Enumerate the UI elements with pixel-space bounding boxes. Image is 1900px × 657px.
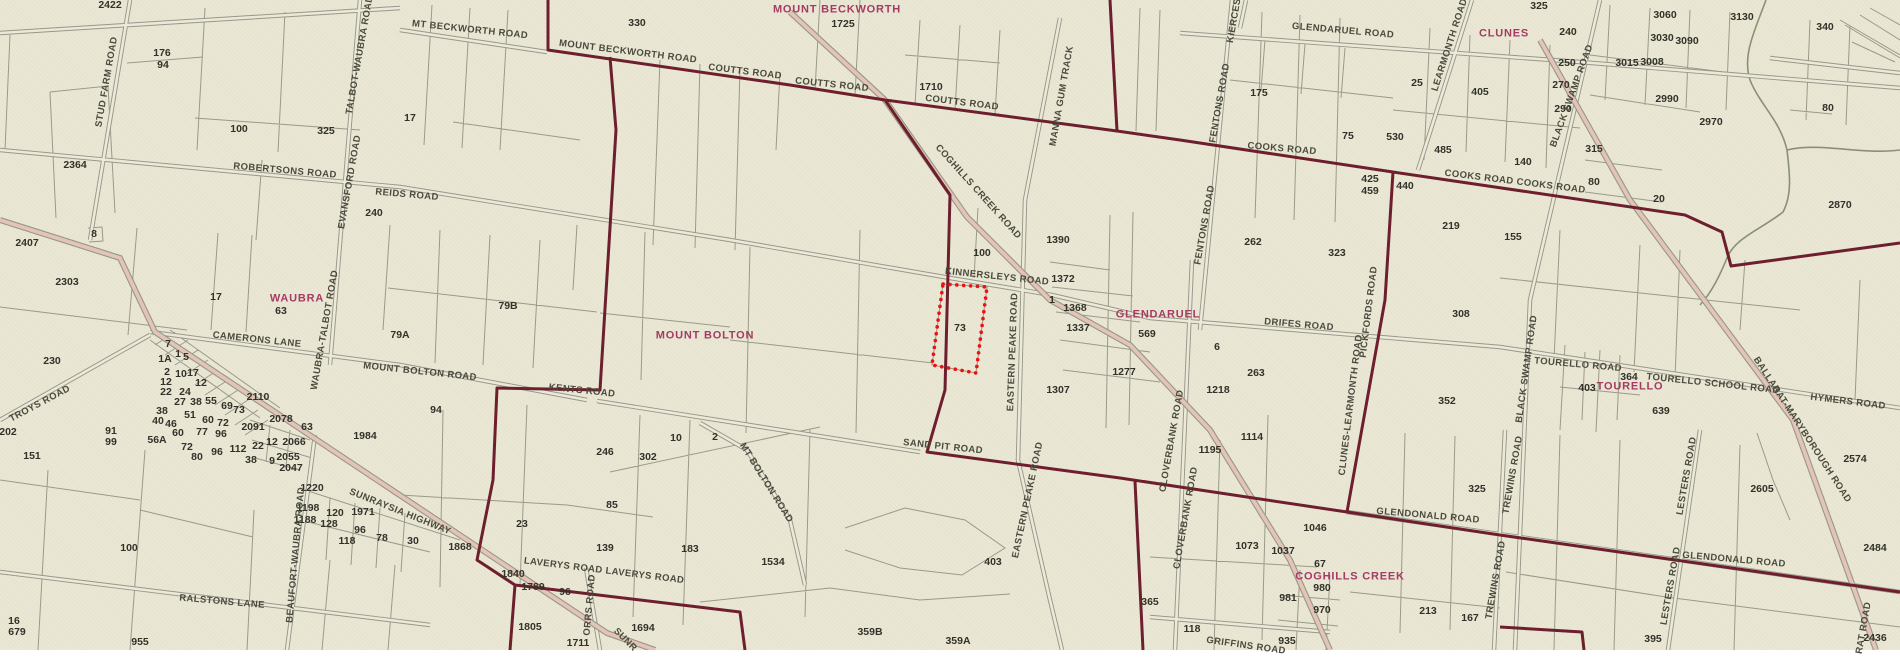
parcel-number: 73	[233, 405, 245, 416]
locality-label: TOURELLO	[1597, 382, 1664, 393]
locality-label: WAUBRA	[270, 294, 324, 305]
locality-label: COGHILLS CREEK	[1295, 572, 1405, 583]
parcel-number: 1534	[761, 557, 784, 568]
parcel-number: 75	[1342, 131, 1354, 142]
parcel-number: 151	[23, 451, 41, 462]
parcel-number: 112	[230, 444, 247, 455]
parcel-number: 263	[1247, 368, 1265, 379]
parcel-number: 1710	[919, 82, 942, 93]
parcel-number: 91	[105, 426, 117, 437]
parcel-number: 1037	[1271, 546, 1294, 557]
parcel-number: 302	[639, 452, 657, 463]
parcel-number: 2574	[1843, 454, 1866, 465]
parcel-number: 230	[43, 356, 61, 367]
parcel-number: 22	[160, 387, 172, 398]
parcel-number: 27	[174, 397, 186, 408]
parcel-number: 40	[152, 416, 164, 427]
parcel-number: 403	[1578, 383, 1596, 394]
parcel-number: 981	[1279, 593, 1297, 604]
parcel-number: 78	[376, 533, 388, 544]
parcel-number: 140	[1514, 157, 1532, 168]
parcel-number: 38	[190, 397, 202, 408]
parcel-number: 1725	[831, 19, 854, 30]
parcel-number: 22	[252, 441, 264, 452]
parcel-number: 365	[1141, 597, 1159, 608]
parcel-number: 3015	[1615, 58, 1638, 69]
parcel-number: 459	[1361, 186, 1379, 197]
parcel-number: 183	[681, 544, 699, 555]
parcel-number: 315	[1585, 144, 1603, 155]
parcel-number: 2605	[1750, 484, 1773, 495]
parcel-number: 240	[1559, 27, 1577, 38]
parcel-number: 1711	[567, 638, 590, 649]
locality-label: GLENDARUEL	[1116, 310, 1200, 321]
parcel-number: 1073	[1235, 541, 1258, 552]
parcel-number: 2091	[241, 422, 264, 433]
parcel-number: 79A	[390, 330, 409, 341]
parcel-number: 219	[1442, 221, 1460, 232]
parcel-number: 2422	[98, 0, 121, 10]
parcel-number: 325	[1530, 1, 1548, 12]
parcel-number: 60	[172, 428, 184, 439]
parcel-number: 246	[596, 447, 614, 458]
parcel-number: 16	[8, 616, 20, 627]
parcel-number: 94	[430, 405, 442, 416]
parcel-number: 100	[120, 543, 138, 554]
parcel-number: 2078	[269, 414, 292, 425]
parcel-number: 96	[559, 587, 571, 598]
parcel-number: 72	[217, 418, 229, 429]
parcel-number: 99	[105, 437, 117, 448]
parcel-number: 1971	[351, 507, 374, 518]
parcel-number: 12	[266, 437, 278, 448]
parcel-number: 128	[320, 519, 338, 530]
parcel-number: 2303	[55, 277, 78, 288]
parcel-number: 325	[1468, 484, 1486, 495]
parcel-number: 2055	[276, 452, 299, 463]
parcel-number: 270	[1552, 80, 1570, 91]
parcel-number: 202	[0, 427, 17, 438]
parcel-number: 7	[165, 339, 171, 350]
parcel-number: 120	[326, 508, 344, 519]
parcel-number: 1046	[1303, 523, 1326, 534]
parcel-number: 485	[1434, 145, 1452, 156]
parcel-number: 2364	[63, 160, 86, 171]
parcel-number: 1984	[353, 431, 376, 442]
parcel-number: 1868	[448, 542, 471, 553]
parcel-number: 1195	[1199, 445, 1222, 456]
parcel-number: 51	[184, 410, 196, 421]
parcel-number: 1789	[521, 582, 544, 593]
parcel-number: 80	[1588, 177, 1600, 188]
parcel-number: 10	[670, 433, 682, 444]
parcel-number: 20	[1653, 194, 1665, 205]
parcel-number: 77	[196, 427, 208, 438]
parcel-number: 340	[1816, 22, 1834, 33]
parcel-number: 3090	[1675, 36, 1698, 47]
parcel-number: 980	[1313, 583, 1331, 594]
locality-label: MOUNT BOLTON	[656, 331, 754, 342]
parcel-number: 1218	[1206, 385, 1229, 396]
parcel-number: 9	[269, 456, 275, 467]
parcel-number: 1372	[1051, 274, 1074, 285]
parcel-number: 403	[984, 557, 1002, 568]
parcel-number: 100	[973, 248, 991, 259]
locality-label: MOUNT BECKWORTH	[773, 5, 901, 16]
parcel-number: 167	[1461, 613, 1479, 624]
parcel-number: 118	[339, 536, 356, 547]
parcel-number: 94	[157, 60, 169, 71]
parcel-number: 1390	[1046, 235, 1069, 246]
parcel-number: 6	[1214, 342, 1220, 353]
parcel-number: 69	[221, 401, 233, 412]
parcel-number: 2970	[1699, 117, 1722, 128]
parcel-number: 23	[516, 519, 528, 530]
parcel-number: 1114	[1241, 432, 1263, 443]
parcel-number: 80	[191, 452, 203, 463]
parcel-number: 73	[954, 323, 966, 334]
parcel-number: 359B	[857, 627, 882, 638]
locality-label: CLUNES	[1479, 29, 1529, 40]
parcel-number: 323	[1328, 248, 1346, 259]
parcel-number: 325	[317, 126, 335, 137]
parcel-number: 100	[230, 124, 248, 135]
parcel-number: 12	[195, 378, 207, 389]
parcel-number: 1337	[1066, 323, 1089, 334]
parcel-number: 118	[1184, 624, 1201, 635]
parcel-number: 213	[1419, 606, 1437, 617]
parcel-number: 1368	[1063, 303, 1086, 314]
parcel-number: 1A	[158, 354, 171, 365]
parcel-number: 3030	[1650, 33, 1673, 44]
parcel-number: 10	[175, 369, 187, 380]
parcel-number: 530	[1386, 132, 1404, 143]
parcel-number: 8	[91, 229, 97, 240]
parcel-number: 425	[1361, 174, 1379, 185]
parcel-number: 60	[202, 415, 214, 426]
parcel-number: 2047	[279, 463, 302, 474]
parcel-number: 17	[404, 113, 416, 124]
parcel-number: 139	[596, 543, 614, 554]
parcel-number: 970	[1313, 605, 1331, 616]
parcel-number: 308	[1452, 309, 1470, 320]
parcel-number: 359A	[945, 636, 970, 647]
parcel-number: 79B	[498, 301, 517, 312]
parcel-number: 3130	[1730, 12, 1753, 23]
parcel-number: 55	[205, 396, 217, 407]
parcel-number: 1840	[501, 569, 524, 580]
parcel-number: 63	[301, 422, 313, 433]
parcel-number: 67	[1314, 559, 1326, 570]
parcel-number: 1694	[631, 623, 654, 634]
parcel-number: 38	[245, 455, 257, 466]
parcel-number: 155	[1504, 232, 1522, 243]
parcel-number: 25	[1411, 78, 1423, 89]
parcel-number: 2407	[15, 238, 38, 249]
parcel-number: 395	[1644, 634, 1662, 645]
parcel-number: 80	[1822, 103, 1834, 114]
cadastral-map-canvas[interactable]: 2422176941003252364240173301725171010013…	[0, 0, 1900, 650]
parcel-number: 2484	[1863, 543, 1886, 554]
parcel-number: 85	[606, 500, 618, 511]
parcel-number: 440	[1396, 181, 1414, 192]
parcel-number: 2066	[282, 437, 305, 448]
parcel-number: 352	[1438, 396, 1456, 407]
parcel-number: 63	[275, 306, 287, 317]
parcel-number: 30	[407, 536, 419, 547]
parcel-number: 1805	[518, 622, 541, 633]
parcel-number: 639	[1652, 406, 1670, 417]
parcel-number: 262	[1244, 237, 1262, 248]
parcel-number: 17	[210, 292, 222, 303]
parcel-number: 56A	[147, 435, 166, 446]
parcel-number: 3008	[1640, 57, 1663, 68]
parcel-number: 175	[1250, 88, 1268, 99]
parcel-number: 1	[1049, 295, 1055, 306]
parcel-number: 405	[1471, 87, 1489, 98]
parcel-number: 2870	[1828, 200, 1851, 211]
parcel-number: 1277	[1112, 367, 1135, 378]
parcel-number: 2	[712, 432, 718, 443]
parcel-number: 2990	[1655, 94, 1678, 105]
parcel-number: 2110	[247, 392, 270, 403]
parcel-number: 1307	[1046, 385, 1069, 396]
parcel-number: 1	[175, 349, 181, 360]
parcel-number: 96	[354, 525, 366, 536]
parcel-number: 96	[215, 429, 227, 440]
parcel-number: 5	[183, 352, 189, 363]
parcel-number: 3060	[1653, 10, 1676, 21]
parcel-number: 96	[211, 447, 223, 458]
parcel-number: 955	[131, 637, 149, 648]
parcel-number: 569	[1138, 329, 1156, 340]
parcel-number: 679	[8, 627, 26, 638]
parcel-number: 176	[153, 48, 171, 59]
parcel-number: 250	[1558, 58, 1576, 69]
parcel-number: 330	[628, 18, 646, 29]
parcel-number: 240	[365, 208, 383, 219]
